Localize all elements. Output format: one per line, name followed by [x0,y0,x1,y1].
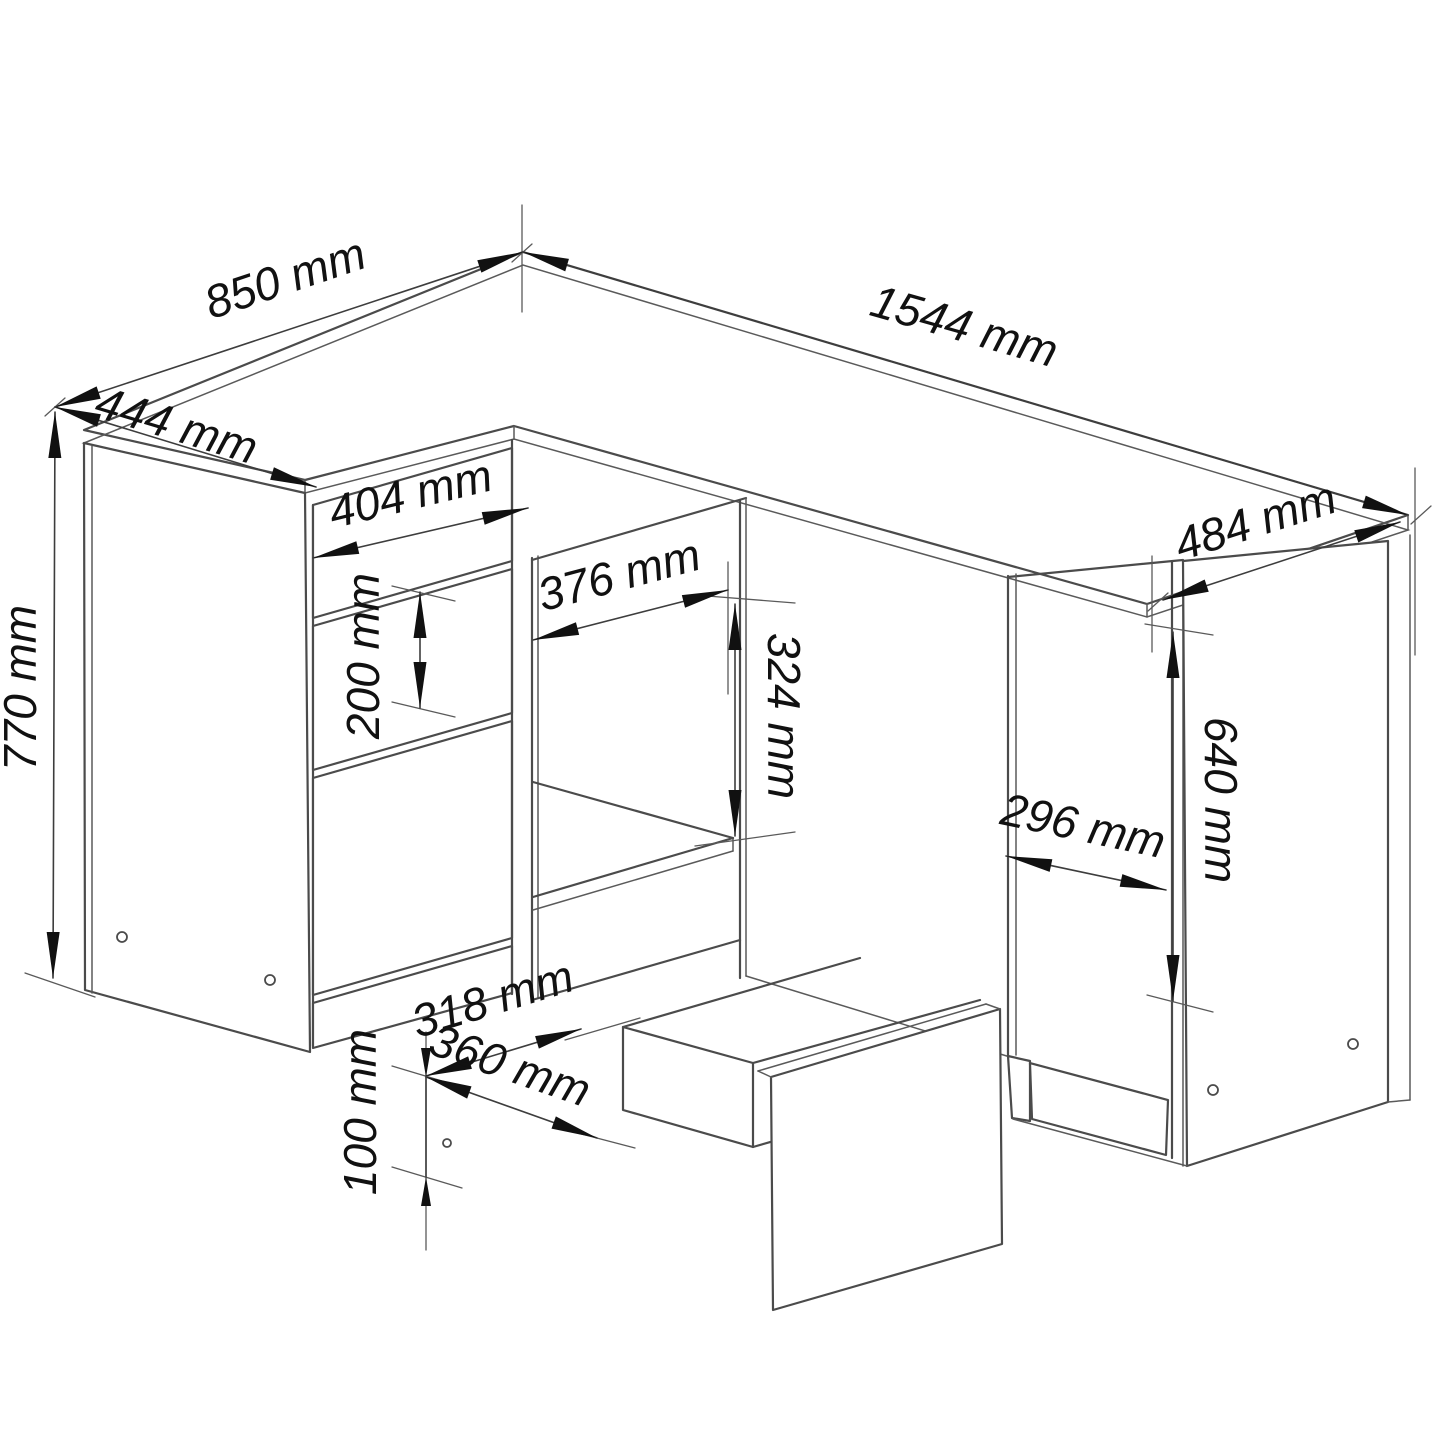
label-850: 850 mm [198,227,372,329]
ref-324-bottom [695,832,795,846]
shelf-front-band [533,851,733,910]
drawer-back-panel [623,1027,753,1147]
shelf-front-edge [533,838,733,897]
label-640: 640 mm [1195,717,1247,883]
drawer-side-top-edge-left [623,958,860,1027]
ref-324-top [695,595,795,603]
left-panel-hole-1 [117,932,127,942]
door-hole-1 [1208,1085,1218,1095]
door-hole-2 [1348,1039,1358,1049]
label-376: 376 mm [532,528,706,621]
tick-right-corner [1411,506,1431,524]
dim-100-arrow-bottom [421,1177,431,1206]
drawer-front-panel [771,1009,1002,1310]
label-324: 324 mm [758,633,810,799]
drawing-canvas: 850 mm 444 mm 1544 mm 484 mm 404 mm 376 … [0,0,1445,1445]
ext-360-right [570,1131,635,1148]
label-296: 296 mm [996,782,1170,868]
right-pedestal-plinth [1030,1063,1168,1155]
label-360: 360 mm [423,1013,597,1116]
left-side-panel [84,443,310,1052]
shelf-back-edge [533,782,733,838]
left-panel-hole-2 [265,975,275,985]
desk-dimension-drawing: 850 mm 444 mm 1544 mm 484 mm 404 mm 376 … [0,0,1445,1445]
drawer-detail-hole [443,1139,451,1147]
right-pedestal-foot [1008,1056,1030,1121]
label-200: 200 mm [337,573,389,740]
drawer-front-panel-band-link-right [986,1004,1000,1009]
right-side-bottom-edge [1388,1100,1410,1102]
dim-line-770 [53,412,55,978]
label-100: 100 mm [334,1029,386,1195]
drawer-front-panel-band-link-left [758,1071,771,1077]
label-770: 770 mm [0,605,46,771]
left-pedestal [84,440,512,1052]
